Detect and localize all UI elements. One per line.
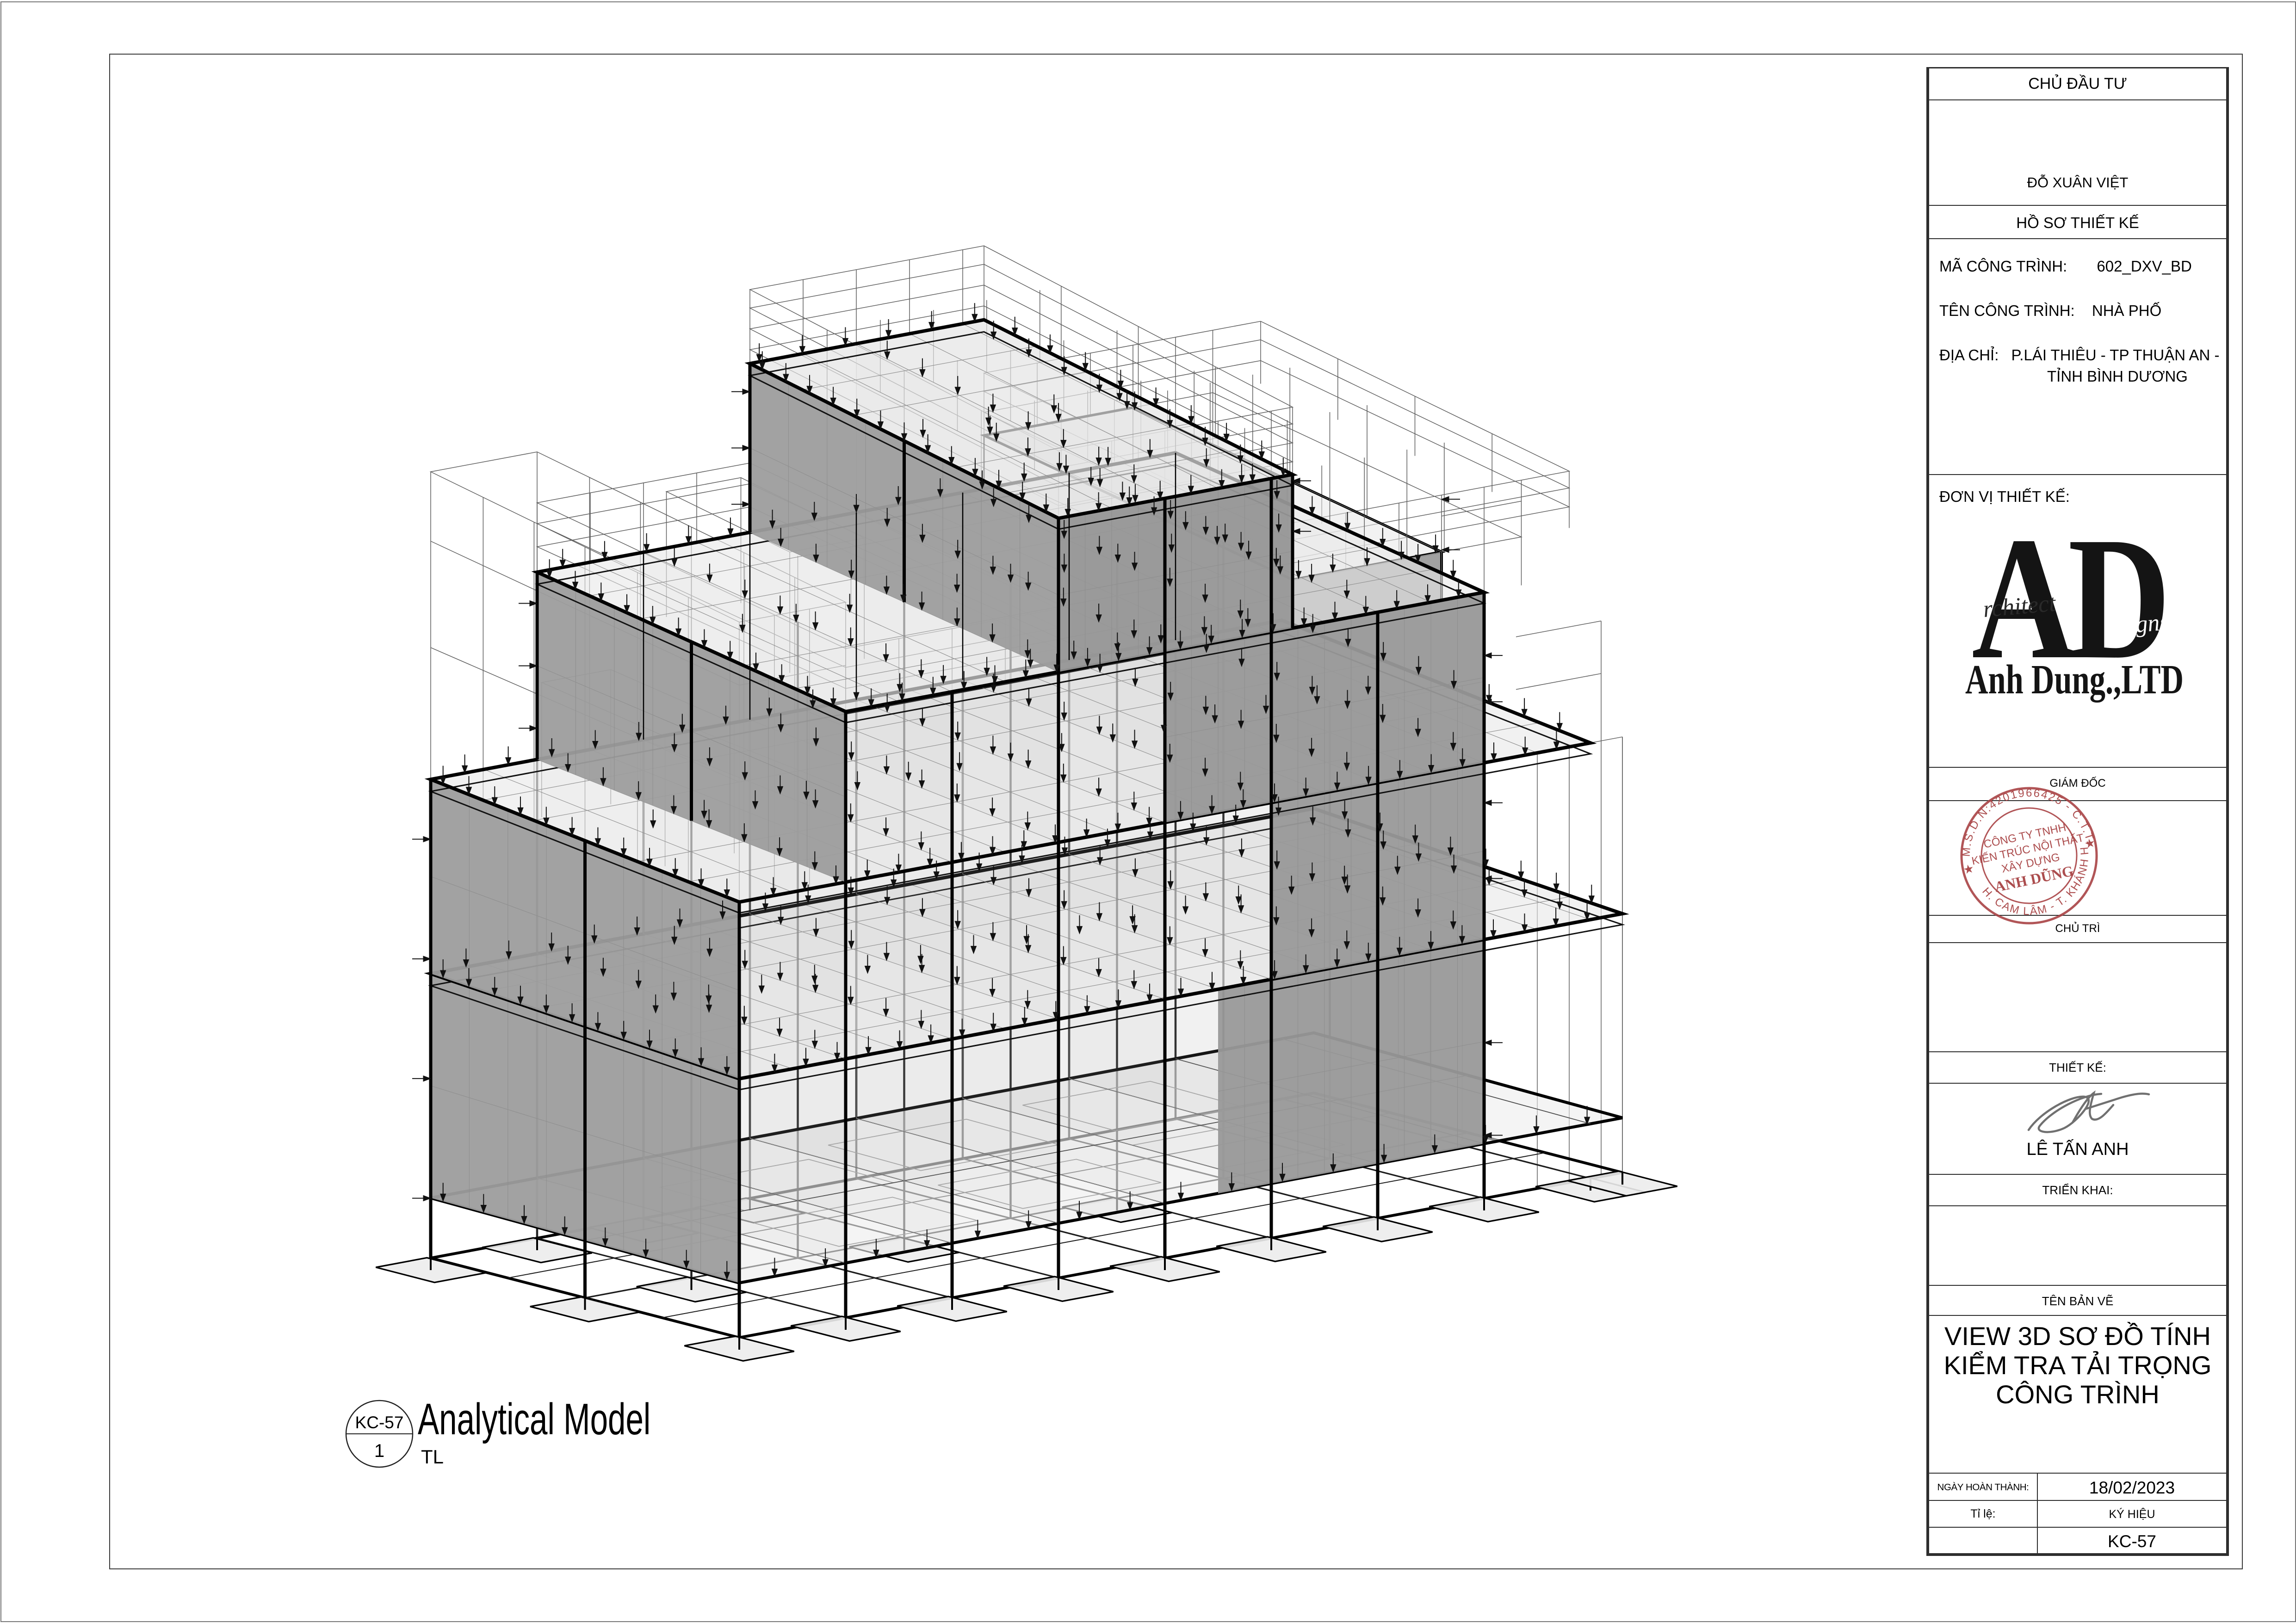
svg-text:1: 1 — [374, 1441, 384, 1461]
svg-text:Anh Dung.,LTD: Anh Dung.,LTD — [1965, 657, 2184, 703]
svg-text:KC-57: KC-57 — [355, 1413, 404, 1432]
svg-text:esigns: esigns — [2108, 609, 2170, 640]
